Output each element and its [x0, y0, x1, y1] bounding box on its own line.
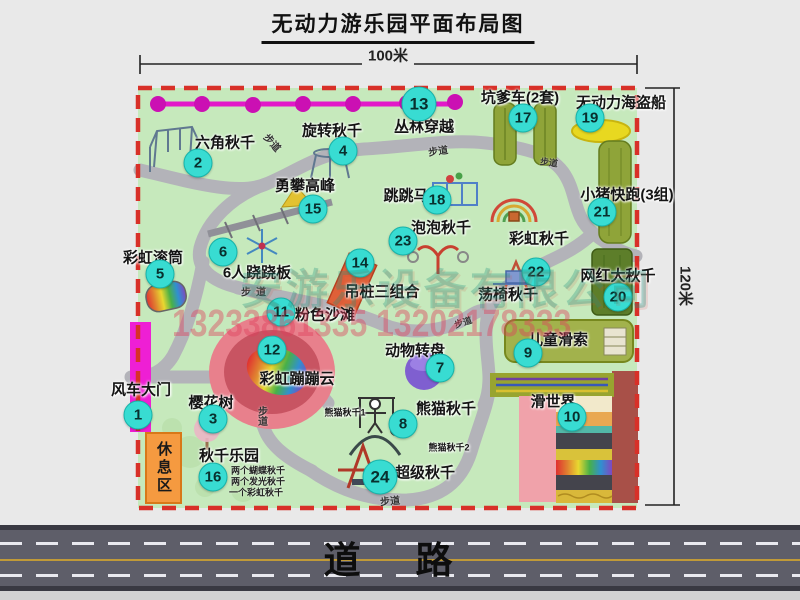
walkway-label: 步道 [254, 406, 269, 426]
label-rainbow-cloud: 彩虹蹦蹦云 [259, 368, 334, 389]
marker-8[interactable]: 8 [389, 410, 418, 439]
marker-24[interactable]: 24 [363, 460, 398, 495]
marker-16[interactable]: 16 [199, 463, 228, 492]
marker-17[interactable]: 17 [509, 104, 538, 133]
label-panda-swing-1: 熊猫秋千1 [324, 406, 365, 419]
label-super-swing: 超级秋千 [395, 462, 455, 483]
label-panda-swing-2: 熊猫秋千2 [428, 441, 469, 454]
marker-7[interactable]: 7 [426, 354, 455, 383]
marker-6[interactable]: 6 [209, 238, 238, 267]
phone-watermark: 13233861335 13202178333 [172, 303, 571, 346]
note-rainbow-swing: 一个彩虹秋千 [229, 486, 283, 499]
marker-5[interactable]: 5 [146, 260, 175, 289]
marker-18[interactable]: 18 [423, 186, 452, 215]
marker-15[interactable]: 15 [299, 195, 328, 224]
marker-1[interactable]: 1 [124, 401, 153, 430]
page-title: 无动力游乐园平面布局图 [262, 8, 535, 44]
marker-10[interactable]: 10 [558, 403, 587, 432]
marker-2[interactable]: 2 [184, 149, 213, 178]
marker-19[interactable]: 19 [576, 104, 605, 133]
marker-3[interactable]: 3 [199, 405, 228, 434]
label-rainbow-swing: 彩虹秋千 [509, 228, 569, 249]
label-windmill-gate: 风车大门 [111, 379, 171, 400]
marker-21[interactable]: 21 [588, 198, 617, 227]
rest-area: 休息区 [145, 432, 182, 504]
label-panda-swing: 熊猫秋千 [416, 398, 476, 419]
width-dimension-label: 100米 [362, 45, 414, 66]
label-climbing-peak: 勇攀高峰 [275, 175, 335, 196]
marker-23[interactable]: 23 [389, 227, 418, 256]
park-layout-screenshot: 无动力游乐园平面布局图 100米 120米 [0, 0, 800, 600]
label-rotating-swing: 旋转秋千 [302, 120, 362, 141]
rest-area-label: 休息区 [153, 441, 174, 495]
height-dimension-label: 120米 [676, 260, 697, 312]
label-bubble-swing: 泡泡秋千 [411, 217, 471, 238]
walkway-label: 步道 [427, 141, 449, 159]
marker-4[interactable]: 4 [329, 137, 358, 166]
walkway-label: 步道 [539, 154, 559, 169]
rainbow-swing-icon [492, 200, 536, 222]
marker-13[interactable]: 13 [402, 87, 437, 122]
